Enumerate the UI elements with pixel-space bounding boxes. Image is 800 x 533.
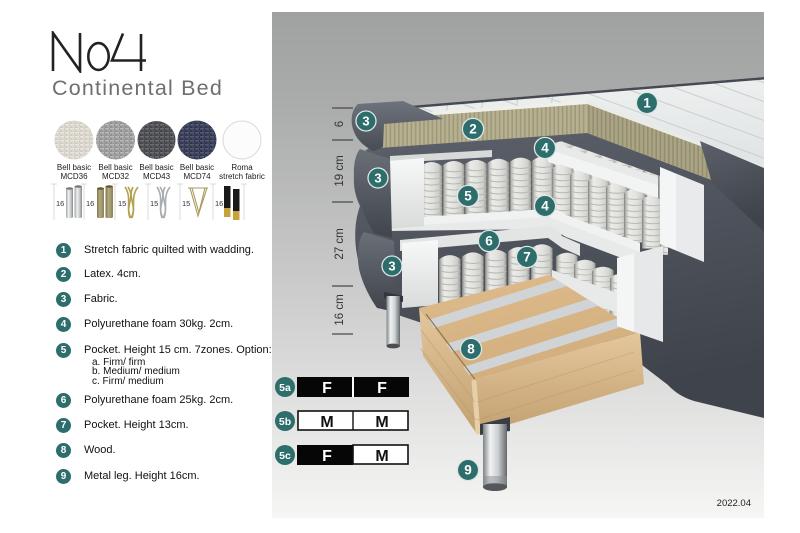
svg-text:16: 16 (56, 199, 64, 208)
svg-text:3: 3 (388, 259, 395, 274)
svg-text:F: F (322, 448, 332, 465)
svg-text:16: 16 (86, 199, 94, 208)
svg-text:4: 4 (541, 199, 549, 214)
svg-text:6: 6 (334, 121, 346, 127)
svg-text:3: 3 (362, 114, 369, 129)
svg-text:3: 3 (374, 171, 381, 186)
svg-text:1: 1 (643, 96, 651, 111)
svg-text:9: 9 (464, 463, 472, 478)
svg-text:4: 4 (541, 141, 549, 156)
svg-text:5a: 5a (279, 382, 291, 394)
svg-text:7: 7 (523, 250, 531, 265)
svg-text:M: M (320, 414, 333, 431)
svg-text:15: 15 (118, 199, 126, 208)
svg-text:F: F (322, 380, 332, 397)
svg-text:8: 8 (467, 342, 475, 357)
svg-text:27 cm: 27 cm (334, 228, 346, 259)
svg-text:2022.04: 2022.04 (717, 498, 751, 509)
svg-text:15: 15 (182, 199, 190, 208)
svg-text:2: 2 (469, 122, 477, 137)
svg-text:5b: 5b (279, 416, 291, 428)
svg-text:19 cm: 19 cm (334, 155, 346, 186)
svg-text:5c: 5c (279, 450, 291, 462)
svg-text:16: 16 (215, 199, 223, 208)
svg-text:F: F (377, 380, 387, 397)
svg-text:M: M (375, 448, 388, 465)
svg-text:6: 6 (485, 234, 493, 249)
svg-text:16 cm: 16 cm (334, 294, 346, 325)
svg-text:M: M (375, 414, 388, 431)
svg-text:5: 5 (464, 189, 472, 204)
svg-text:15: 15 (150, 199, 158, 208)
